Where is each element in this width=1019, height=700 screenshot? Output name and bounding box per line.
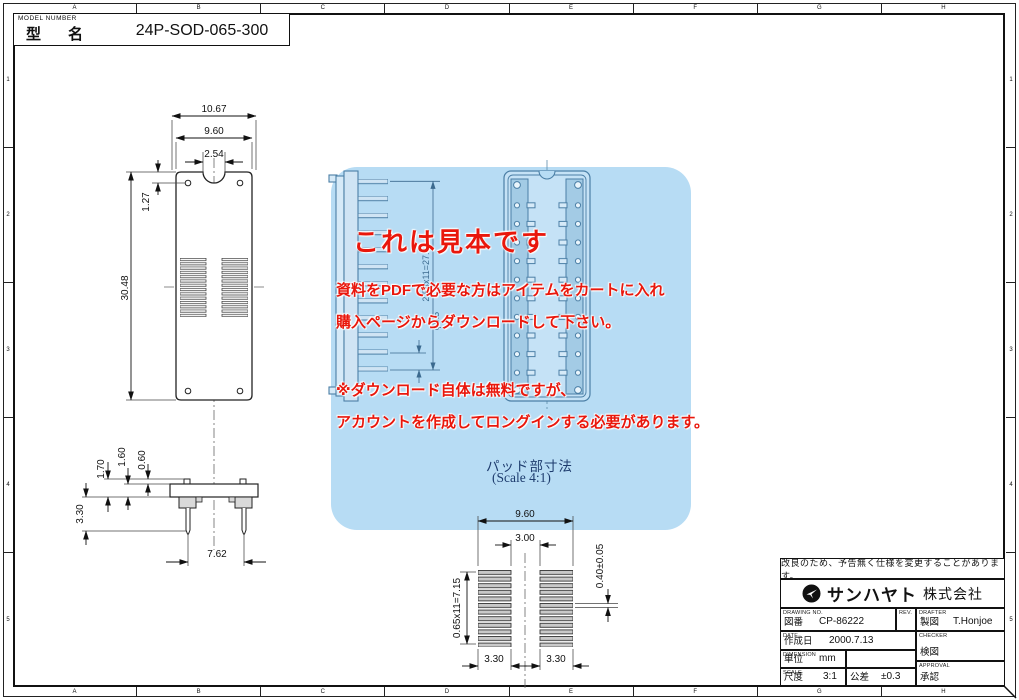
hole xyxy=(185,180,191,186)
mount-hole xyxy=(575,387,582,394)
dim-pin-length: 3.30 xyxy=(75,504,86,524)
hole xyxy=(237,180,243,186)
pad-rows xyxy=(478,570,573,647)
scale-cell: SCALE 尺度 3:1 xyxy=(780,668,846,686)
standoff-step xyxy=(229,497,235,502)
top-view xyxy=(176,172,252,400)
watermark-heading: これは見本です xyxy=(353,222,549,259)
dim-pad-width-left: 3.30 xyxy=(484,654,504,665)
tab xyxy=(240,479,246,484)
dim-overall-width: 10.67 xyxy=(201,104,226,115)
side-view-dims xyxy=(82,462,266,566)
standoff-block xyxy=(235,497,252,508)
company-suffix: 株式会社 xyxy=(923,584,983,604)
dim-pad-gap: 3.00 xyxy=(515,533,535,544)
unit-label: 単位 xyxy=(784,651,803,665)
tolerance-label: 公差 xyxy=(850,669,869,683)
standoff-block xyxy=(179,497,196,508)
drawing-no-cell: DRAWING NO. 図番 CP-86222 xyxy=(780,608,896,631)
drafter-label: 製図 xyxy=(920,614,939,628)
drawing-no-label: 図番 xyxy=(784,614,803,628)
dim-notch-width: 2.54 xyxy=(204,149,224,160)
standoff-step xyxy=(196,497,202,502)
checker-cell: CHECKER 検図 xyxy=(916,631,1005,661)
dim-pin-span: 7.62 xyxy=(207,549,227,560)
date-cell: DATE 作成日 2000.7.13 xyxy=(780,631,916,650)
approval-label: 承認 xyxy=(920,669,939,683)
dim-body-length: 30.48 xyxy=(120,275,131,300)
revision-note: 改良のため、予告無く仕様を変更することがあります。 xyxy=(780,558,1005,579)
unit-extra-cell xyxy=(846,650,916,668)
tab xyxy=(184,479,190,484)
drawing-sheet: A B C D E F G H A B C D E F G H 1 2 3 4 … xyxy=(0,0,1019,700)
approval-cell: APPROVAL 承認 xyxy=(916,661,1005,686)
watermark-line4: アカウントを作成してロングインする必要があります。 xyxy=(336,411,709,432)
mount-hole xyxy=(514,182,521,189)
dim-pad-width-right: 3.30 xyxy=(546,654,566,665)
dim-pad-pitch-total: 0.65x11=7.15 xyxy=(452,577,463,638)
mount-hole xyxy=(575,182,582,189)
company-row: サンハヤト 株式会社 xyxy=(780,579,1005,608)
tolerance-cell: 公差 ±0.3 xyxy=(846,668,916,686)
watermark-line3: ※ダウンロード自体は無料ですが、 xyxy=(336,379,575,400)
rev-cell: REV. xyxy=(896,608,916,631)
pad-stripes xyxy=(180,258,248,317)
pad-detail xyxy=(478,570,573,647)
rev-caption: REV. xyxy=(899,610,912,616)
unit-value: mm xyxy=(819,653,836,664)
drawing-no-value: CP-86222 xyxy=(819,616,864,627)
scale-value: 3:1 xyxy=(823,671,837,682)
side-body xyxy=(170,484,258,497)
scale-label: 尺度 xyxy=(784,669,803,683)
pin xyxy=(242,508,246,534)
corner-cut xyxy=(1004,686,1016,698)
dim-pad-height: 0.40±0.05 xyxy=(595,543,606,588)
drafter-cell: DRAFTER 製図 T.Honjoe xyxy=(916,608,1005,631)
date-label: 作成日 xyxy=(784,633,813,647)
pin xyxy=(186,508,190,534)
watermark-line2: 購入ページからダウンロードして下さい。 xyxy=(336,311,620,332)
unit-cell: DIMENSION 単位 mm xyxy=(780,650,846,668)
checker-caption: CHECKER xyxy=(919,633,947,639)
dim-pad-overall: 9.60 xyxy=(515,509,535,520)
watermark-line1: 資料をPDFで必要な方はアイテムをカートに入れ xyxy=(336,279,665,300)
drafter-value: T.Honjoe xyxy=(953,616,992,627)
dim-height-body: 1.60 xyxy=(117,447,128,467)
socket-pins xyxy=(358,179,388,372)
pad-detail-scale: (Scale 4:1) xyxy=(492,470,551,486)
company-logo-icon xyxy=(802,584,821,603)
checker-label: 検図 xyxy=(920,644,939,658)
company-name: サンハヤト xyxy=(827,581,917,606)
dim-body-width: 9.60 xyxy=(204,126,224,137)
dim-hole-offset: 1.27 xyxy=(141,192,152,212)
hole xyxy=(237,388,243,394)
dim-height-total: 1.70 xyxy=(96,459,107,479)
date-value: 2000.7.13 xyxy=(829,635,874,646)
tolerance-value: ±0.3 xyxy=(881,671,900,682)
hole xyxy=(185,388,191,394)
dim-height-tab: 0.60 xyxy=(137,450,148,470)
title-block: 改良のため、予告無く仕様を変更することがあります。 サンハヤト 株式会社 DRA… xyxy=(780,558,1005,686)
